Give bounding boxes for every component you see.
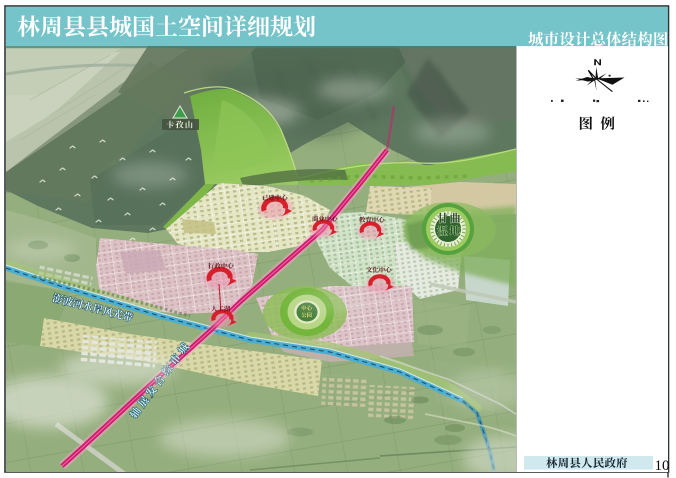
svg-text:10: 10 bbox=[655, 458, 670, 474]
